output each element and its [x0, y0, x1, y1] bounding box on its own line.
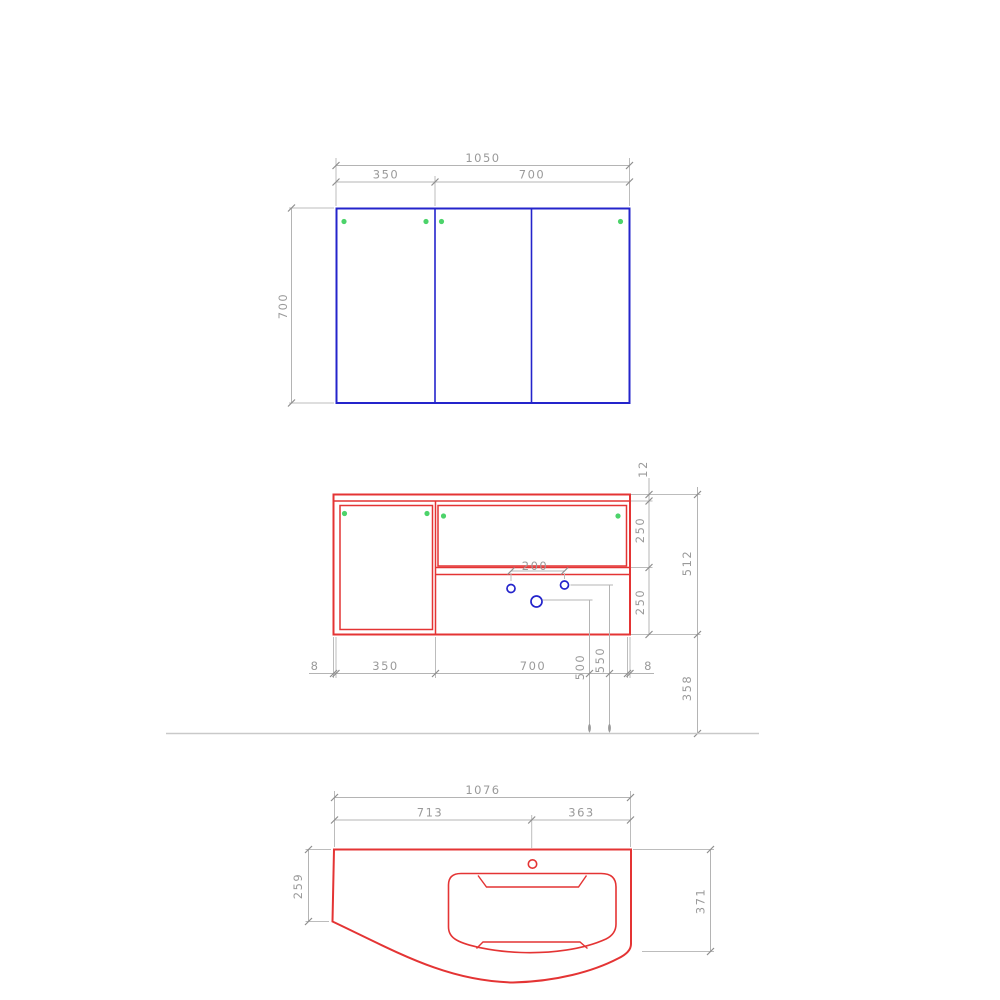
mirror-cabinet-outline	[337, 209, 630, 404]
dim-basin-total-width: 1076	[465, 783, 500, 797]
dim-hole-height-a: 500	[573, 654, 587, 680]
dim-mirror-left-width: 350	[373, 168, 399, 182]
vanity-cabinet-front-view: 200 12 250 250	[309, 460, 701, 737]
dim-vanity-floor-clearance: 358	[680, 675, 694, 701]
dim-mirror-total-width: 1050	[465, 151, 500, 165]
basin-counter-outline	[333, 850, 632, 983]
vanity-right-door	[438, 506, 627, 567]
washbasin-plan-view: 1076 713 363 259 371	[291, 783, 714, 983]
dim-vanity-gap-left: 8	[311, 659, 320, 673]
technical-drawing-canvas: 1050 350 700 700	[0, 0, 1000, 1000]
hinge-dot	[424, 511, 429, 516]
vanity-left-door	[340, 506, 433, 630]
dim-mirror-height: 700	[276, 293, 290, 319]
dim-vanity-top-thickness: 12	[636, 460, 650, 478]
dim-hole-spacing: 200	[522, 559, 548, 573]
mirror-dimension-ticks	[288, 162, 633, 407]
dim-vanity-height-total: 512	[680, 550, 694, 576]
leader-arrow	[608, 724, 611, 732]
basin-back-shelf-line	[478, 876, 587, 888]
mirror-hinge-dots	[341, 219, 623, 224]
dim-hole-height-b: 550	[593, 647, 607, 673]
hinge-dot	[618, 219, 623, 224]
hinge-dot	[615, 513, 620, 518]
basin-dimension-lines	[309, 798, 711, 952]
mirror-extension-lines	[289, 158, 630, 403]
basin-dimension-ticks	[305, 794, 714, 955]
leader-arrow	[588, 724, 591, 732]
vanity-right-dim-column-b	[694, 487, 701, 737]
vanity-outline	[334, 495, 631, 635]
basin-front-shelf-line	[477, 942, 588, 949]
basin-bowl-outline	[449, 874, 617, 953]
hole-circle-large	[531, 596, 542, 607]
faucet-hole-circle	[528, 860, 536, 868]
hinge-dot	[423, 219, 428, 224]
dim-vanity-upper-section: 250	[633, 517, 647, 543]
dim-basin-right-width: 363	[568, 806, 594, 820]
mirror-cabinet-front-view: 1050 350 700 700	[276, 151, 633, 407]
vanity-hinge-dots	[342, 511, 621, 519]
dim-vanity-lower-section: 250	[633, 589, 647, 615]
vanity-mounting-holes	[507, 581, 569, 607]
dim-basin-left-width: 713	[417, 806, 443, 820]
dim-vanity-section-right: 700	[520, 659, 546, 673]
hinge-dot	[342, 511, 347, 516]
hinge-dot	[341, 219, 346, 224]
hole-circle-small-right	[561, 581, 569, 589]
basin-extension-lines	[306, 791, 715, 952]
hole-circle-small-left	[507, 585, 515, 593]
mirror-dimension-lines	[292, 166, 630, 404]
hinge-dot	[441, 513, 446, 518]
dim-vanity-door-left: 350	[372, 659, 398, 673]
dim-basin-depth-right: 371	[694, 888, 708, 914]
dim-vanity-gap-right: 8	[644, 659, 653, 673]
dim-mirror-right-width: 700	[519, 168, 545, 182]
hinge-dot	[439, 219, 444, 224]
dim-basin-depth-left: 259	[291, 873, 305, 899]
